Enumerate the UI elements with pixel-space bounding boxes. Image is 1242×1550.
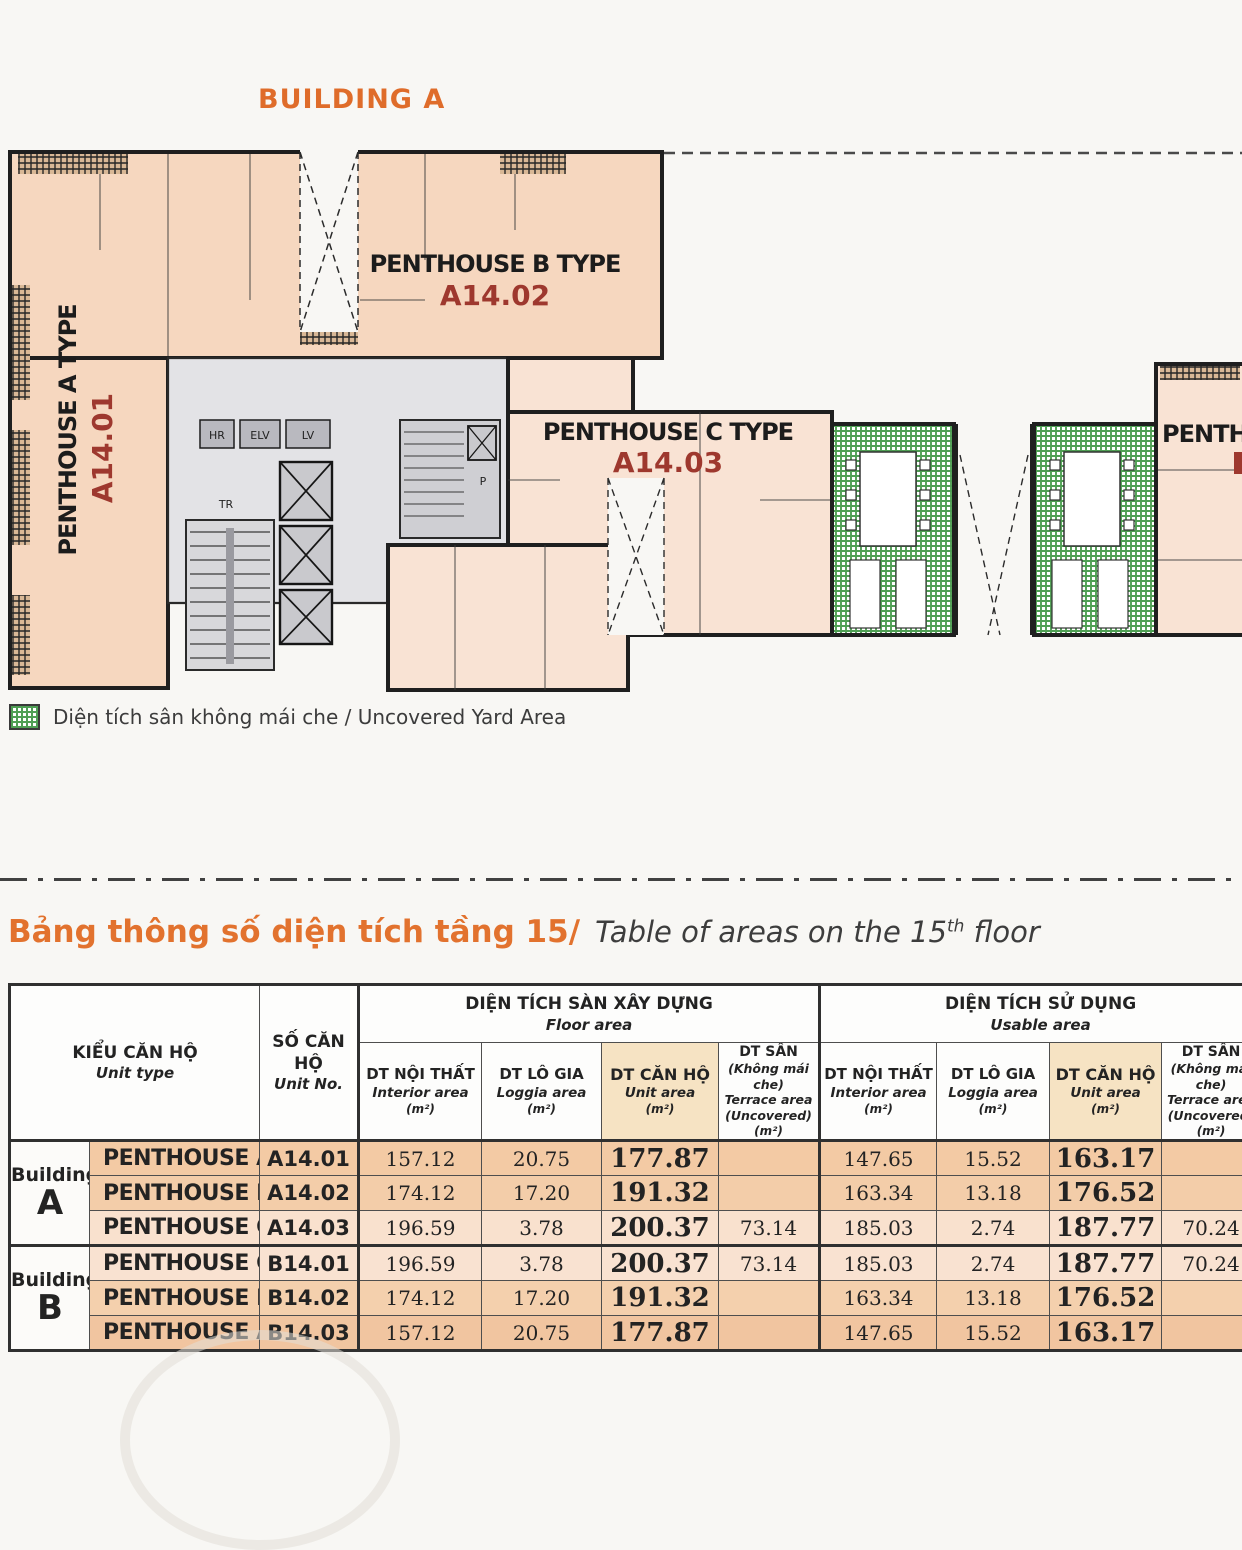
cell-f-int: 157.12 [359, 1141, 482, 1176]
cell-f-ter: 73.14 [719, 1246, 820, 1281]
cell-u-log: 2.74 [937, 1246, 1050, 1281]
h-u-log-m2: (m²) [937, 1102, 1049, 1118]
cell-f-ter [719, 1316, 820, 1351]
balcony-hatch [18, 154, 128, 174]
cell-f-log: 3.78 [482, 1246, 602, 1281]
core-label-p: P [480, 475, 487, 488]
cell-f-ter [719, 1176, 820, 1211]
section-title: Bảng thông số diện tích tầng 15/ Table o… [8, 914, 1040, 950]
building-title: BUILDING A [258, 84, 445, 115]
core-label-lv: LV [302, 429, 315, 442]
legend: Diện tích sân không mái che / Uncovered … [9, 704, 566, 730]
areas-table: KIỂU CĂN HỘ Unit type SỐ CĂN HỘ Unit No.… [8, 983, 1242, 1352]
h-u-ter-en2: Terrace area [1162, 1092, 1242, 1108]
cell-f-log: 20.75 [482, 1141, 602, 1176]
floor-plan: HR ELV LV TR P [0, 140, 1242, 715]
unit-a-name: PENTHOUSE A TYPE [54, 304, 82, 555]
header-unit-no: SỐ CĂN HỘ Unit No. [260, 985, 359, 1141]
h-f-ter-en3: (Uncovered) [719, 1108, 818, 1124]
h-u-ter-m2: (m²) [1162, 1124, 1242, 1140]
header-usable-area-vi: DIỆN TÍCH SỬ DỤNG [821, 994, 1242, 1015]
cell-f-log: 3.78 [482, 1211, 602, 1246]
h-u-ter-vi: DT SÂN [1162, 1043, 1242, 1061]
balcony-hatch [500, 154, 566, 174]
unit-c-name: PENTHOUSE C TYPE [543, 418, 793, 446]
header-unit-type-vi: KIỂU CĂN HỘ [11, 1043, 259, 1064]
h-u-log-vi: DT LÔ GIA [937, 1065, 1049, 1085]
header-floor-area-en: Floor area [360, 1016, 818, 1034]
cell-type: PENTHOUSE B [90, 1176, 260, 1211]
cell-u-log: 13.18 [937, 1281, 1050, 1316]
cell-f-ter: 73.14 [719, 1211, 820, 1246]
table-row: PENTHOUSE A B14.03 157.12 20.75 177.87 1… [10, 1316, 1242, 1351]
balcony-hatch [1160, 366, 1240, 380]
cell-f-int: 157.12 [359, 1316, 482, 1351]
cell-f-log: 17.20 [482, 1176, 602, 1211]
section-title-vi: Bảng thông số diện tích tầng 15/ [8, 914, 580, 950]
cell-u-unit: 187.77 [1050, 1211, 1162, 1246]
cell-u-ter [1162, 1141, 1242, 1176]
core-label-hr: HR [209, 429, 225, 442]
unit-c-code: A14.03 [613, 446, 723, 479]
cell-f-unit: 177.87 [602, 1316, 719, 1351]
h-f-log-vi: DT LÔ GIA [482, 1065, 601, 1085]
void-notch-top [300, 150, 358, 345]
cell-u-ter [1162, 1281, 1242, 1316]
h-u-unit-vi: DT CĂN HỘ [1050, 1065, 1161, 1086]
core-label-tr: TR [218, 498, 234, 511]
building-b-letter: B [11, 1291, 89, 1325]
balcony-hatch [12, 285, 30, 400]
cell-u-int: 147.65 [820, 1141, 937, 1176]
h-f-log-m2: (m²) [482, 1102, 601, 1118]
balcony-hatch [12, 430, 30, 545]
table-row: PENTHOUSE B A14.02 174.12 17.20 191.32 1… [10, 1176, 1242, 1211]
h-f-int-en: Interior area [360, 1085, 481, 1102]
table-row: PENTHOUSE C A14.03 196.59 3.78 200.37 73… [10, 1211, 1242, 1246]
table-row: PENTHOUSE B B14.02 174.12 17.20 191.32 1… [10, 1281, 1242, 1316]
cell-u-unit: 187.77 [1050, 1246, 1162, 1281]
h-f-ter-en2: Terrace area [719, 1092, 818, 1108]
header-u-terrace: DT SÂN (Không mái che) Terrace area (Unc… [1162, 1043, 1242, 1141]
watermark-arc [120, 1330, 400, 1550]
header-u-loggia: DT LÔ GIA Loggia area (m²) [937, 1043, 1050, 1141]
penthouse-c-bedrooms [388, 545, 628, 690]
h-f-unit-m2: (m²) [602, 1102, 718, 1118]
header-floor-area-group: DIỆN TÍCH SÀN XÂY DỰNG Floor area [359, 985, 820, 1043]
header-unit-no-vi: SỐ CĂN HỘ [260, 1032, 357, 1075]
stair-1-rail [226, 528, 234, 664]
h-f-unit-vi: DT CĂN HỘ [602, 1065, 718, 1086]
cell-u-unit: 163.17 [1050, 1141, 1162, 1176]
cell-u-ter: 70.24 [1162, 1211, 1242, 1246]
cell-u-unit: 176.52 [1050, 1281, 1162, 1316]
legend-label: Diện tích sân không mái che / Uncovered … [53, 705, 566, 729]
core-label-elv: ELV [250, 429, 270, 442]
cell-u-int: 185.03 [820, 1246, 937, 1281]
header-unit-type: KIỂU CĂN HỘ Unit type [10, 985, 260, 1141]
cell-u-ter [1162, 1316, 1242, 1351]
cell-u-int: 147.65 [820, 1316, 937, 1351]
cell-u-unit: 176.52 [1050, 1176, 1162, 1211]
h-u-ter-en3: (Uncovered) [1162, 1108, 1242, 1124]
h-u-int-vi: DT NỘI THẤT [821, 1065, 936, 1085]
cell-no: A14.01 [260, 1141, 359, 1176]
cell-f-int: 174.12 [359, 1281, 482, 1316]
table-row: Building B PENTHOUSE C B14.01 196.59 3.7… [10, 1246, 1242, 1281]
cell-f-int: 174.12 [359, 1176, 482, 1211]
h-u-unit-en: Unit area [1050, 1085, 1161, 1102]
wing-lower [388, 358, 1242, 690]
header-usable-area-en: Usable area [821, 1016, 1242, 1034]
h-f-int-m2: (m²) [360, 1102, 481, 1118]
section-title-en-suffix: floor [964, 915, 1039, 949]
cell-u-log: 15.52 [937, 1316, 1050, 1351]
cell-no: B14.02 [260, 1281, 359, 1316]
header-f-loggia: DT LÔ GIA Loggia area (m²) [482, 1043, 602, 1141]
cell-type: PENTHOUSE A [90, 1141, 260, 1176]
cell-u-unit: 163.17 [1050, 1316, 1162, 1351]
cell-f-unit: 200.37 [602, 1246, 719, 1281]
cell-f-ter [719, 1281, 820, 1316]
cell-no: B14.01 [260, 1246, 359, 1281]
cell-u-ter: 70.24 [1162, 1246, 1242, 1281]
cell-type: PENTHOUSE B [90, 1281, 260, 1316]
cell-type: PENTHOUSE A [90, 1316, 260, 1351]
balcony-hatch [12, 595, 30, 675]
h-u-int-en: Interior area [821, 1085, 936, 1102]
cell-type: PENTHOUSE C [90, 1246, 260, 1281]
header-unit-no-en: Unit No. [260, 1075, 357, 1093]
header-floor-area-vi: DIỆN TÍCH SÀN XÂY DỰNG [360, 994, 818, 1015]
section-divider [0, 878, 1242, 881]
header-u-unitarea: DT CĂN HỘ Unit area (m²) [1050, 1043, 1162, 1141]
void-notch-c [608, 478, 664, 635]
header-f-terrace: DT SÂN (Không mái che) Terrace area (Unc… [719, 1043, 820, 1141]
cell-u-int: 163.34 [820, 1176, 937, 1211]
cell-no: B14.03 [260, 1316, 359, 1351]
table-row: Building A PENTHOUSE A A14.01 157.12 20.… [10, 1141, 1242, 1176]
cell-f-unit: 191.32 [602, 1281, 719, 1316]
header-unit-type-en: Unit type [11, 1064, 259, 1082]
unit-b-name: PENTHOUSE B TYPE [370, 250, 621, 278]
cell-f-unit: 200.37 [602, 1211, 719, 1246]
cell-f-log: 20.75 [482, 1316, 602, 1351]
page: { "page": { "building_title": "BUILDING … [0, 0, 1242, 1424]
section-title-en-sup: th [947, 916, 964, 936]
cell-f-log: 17.20 [482, 1281, 602, 1316]
h-f-ter-en1: (Không mái che) [719, 1061, 818, 1092]
cell-f-int: 196.59 [359, 1211, 482, 1246]
cell-u-log: 2.74 [937, 1211, 1050, 1246]
cell-no: A14.02 [260, 1176, 359, 1211]
cell-no: A14.03 [260, 1211, 359, 1246]
h-u-log-en: Loggia area [937, 1085, 1049, 1102]
cell-u-log: 13.18 [937, 1176, 1050, 1211]
section-title-en: Table of areas on the 15th floor [595, 915, 1040, 949]
cell-u-int: 185.03 [820, 1211, 937, 1246]
penthouse-right-area [1156, 364, 1242, 635]
building-a-cell: Building A [10, 1141, 90, 1246]
cell-f-unit: 191.32 [602, 1176, 719, 1211]
cell-type: PENTHOUSE C [90, 1211, 260, 1246]
unit-right-code-sliver [1234, 452, 1242, 474]
header-f-unitarea: DT CĂN HỘ Unit area (m²) [602, 1043, 719, 1141]
h-f-ter-vi: DT SÂN [719, 1043, 818, 1061]
uncovered-yard-swatch [9, 704, 40, 730]
cell-f-unit: 177.87 [602, 1141, 719, 1176]
h-f-unit-en: Unit area [602, 1085, 718, 1102]
building-a-letter: A [11, 1186, 89, 1220]
uncovered-yard-2 [1034, 424, 1156, 635]
header-f-interior: DT NỘI THẤT Interior area (m²) [359, 1043, 482, 1141]
void-between-yards [956, 424, 1032, 635]
h-u-int-m2: (m²) [821, 1102, 936, 1118]
unit-a-code: A14.01 [86, 393, 119, 503]
header-u-interior: DT NỘI THẤT Interior area (m²) [820, 1043, 937, 1141]
cell-u-log: 15.52 [937, 1141, 1050, 1176]
h-f-int-vi: DT NỘI THẤT [360, 1065, 481, 1085]
h-u-ter-en1: (Không mái che) [1162, 1061, 1242, 1092]
cell-f-ter [719, 1141, 820, 1176]
building-b-cell: Building B [10, 1246, 90, 1351]
areas-table-wrap: KIỂU CĂN HỘ Unit type SỐ CĂN HỘ Unit No.… [8, 983, 1242, 1352]
h-u-unit-m2: (m²) [1050, 1102, 1161, 1118]
section-title-en-prefix: Table of areas on the 15 [595, 915, 947, 949]
h-f-ter-m2: (m²) [719, 1124, 818, 1140]
uncovered-yard-1 [832, 424, 954, 635]
cell-f-int: 196.59 [359, 1246, 482, 1281]
unit-right-name-clipped: PENTHOUSE [1162, 420, 1242, 448]
cell-u-ter [1162, 1176, 1242, 1211]
h-f-log-en: Loggia area [482, 1085, 601, 1102]
header-usable-area-group: DIỆN TÍCH SỬ DỤNG Usable area [820, 985, 1242, 1043]
cell-u-int: 163.34 [820, 1281, 937, 1316]
unit-b-code: A14.02 [440, 279, 550, 312]
